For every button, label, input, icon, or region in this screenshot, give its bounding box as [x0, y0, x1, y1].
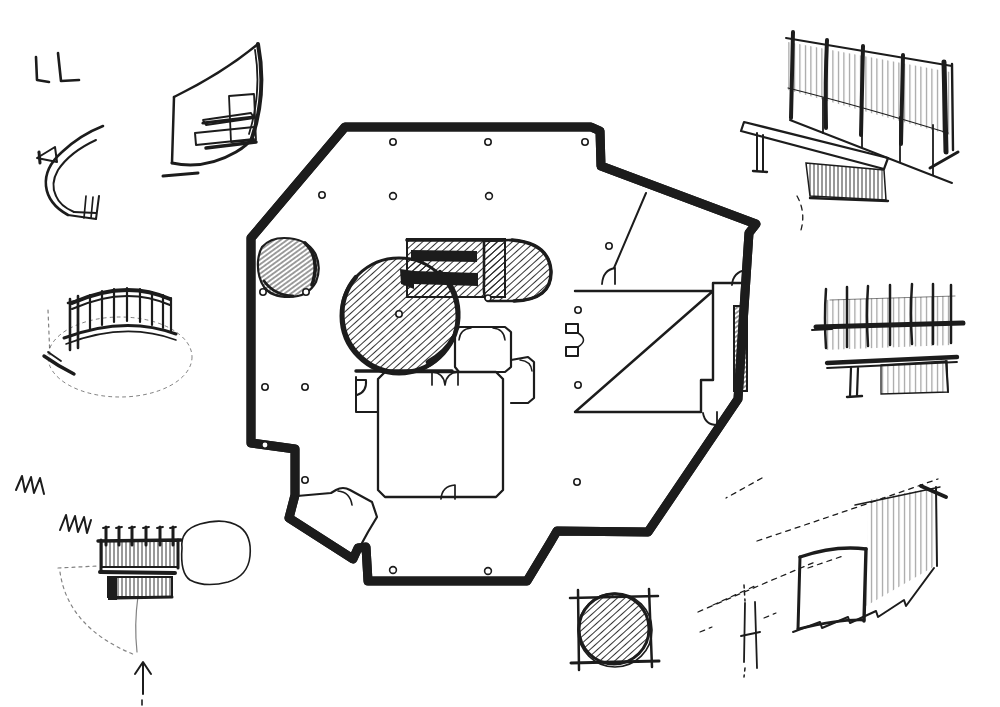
left-side-room — [356, 377, 378, 412]
right-room — [566, 283, 747, 425]
hatched-corner-volume — [258, 238, 319, 297]
l-marks — [36, 53, 79, 82]
window-wall-study — [698, 478, 946, 677]
upper-right-partition — [602, 193, 746, 285]
entry-detail-study — [16, 476, 250, 705]
fence-bench-study — [812, 284, 963, 397]
hatched-d-volume — [484, 240, 551, 301]
bench-wall-study — [741, 32, 958, 230]
curved-wall-study — [163, 44, 261, 176]
central-room — [356, 371, 503, 499]
approach-arrow — [135, 662, 151, 705]
hatched-large-circle — [341, 258, 458, 374]
railing-study — [44, 288, 192, 397]
small-room-b — [511, 357, 534, 403]
sketch-svg — [0, 0, 1000, 707]
sketch-sheet — [0, 0, 1000, 707]
small-room-a — [455, 327, 511, 372]
ribbon-study — [37, 126, 103, 219]
hatched-wall-strip — [734, 306, 747, 391]
plan-wall-inner-gap — [251, 127, 756, 581]
floor-plan — [251, 127, 756, 581]
scribble — [16, 476, 44, 494]
black-bar — [411, 250, 477, 262]
scribble — [60, 515, 91, 533]
square-circle-study — [570, 589, 659, 670]
